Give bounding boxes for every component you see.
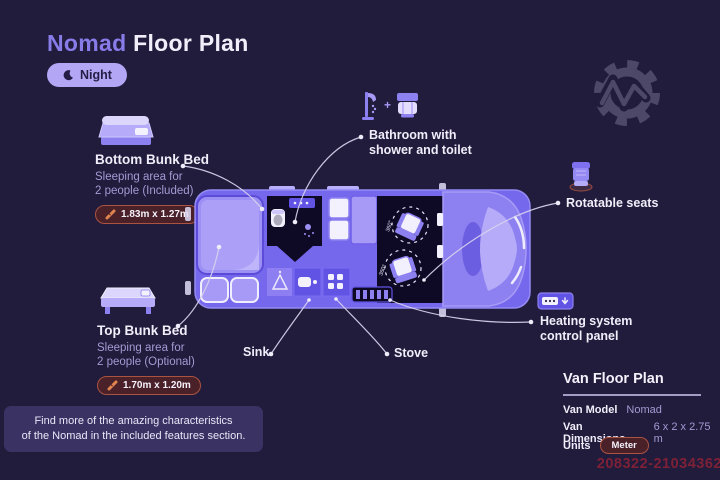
bottom-bunk-title: Bottom Bunk Bed	[95, 152, 209, 167]
top-bunk-dimensions-badge: 1.70m x 1.20m	[97, 376, 201, 395]
bathroom-label: Bathroom with shower and toilet	[369, 128, 472, 158]
van-info-panel-title: Van Floor Plan	[563, 371, 664, 387]
plus-sign: +	[384, 98, 391, 112]
bed-area	[197, 196, 263, 302]
ruler-icon	[107, 380, 118, 391]
top-bunk-title: Top Bunk Bed	[97, 323, 201, 338]
sink-label: Sink	[243, 345, 269, 360]
stove-label: Stove	[394, 346, 428, 361]
mirror-left-top	[185, 207, 191, 221]
top-bunk-desc: Sleeping area for 2 people (Optional)	[97, 341, 201, 369]
pillow	[231, 278, 258, 302]
rotatable-seat-icon	[567, 160, 595, 192]
van-floor-plan-illustration: 360° 360°	[185, 183, 535, 318]
kitchen-area	[267, 268, 350, 296]
heating-panel-icon	[537, 292, 574, 310]
info-banner: Find more of the amazing characteristics…	[4, 406, 263, 452]
cabinets-area	[329, 196, 377, 244]
cab-area	[437, 192, 526, 306]
bottom-bunk-bed-icon	[95, 110, 209, 148]
brand-logo-gear-icon	[591, 53, 663, 133]
toilet-icon	[396, 92, 419, 119]
bottom-bunk-dimensions-badge: 1.83m x 1.27m	[95, 205, 199, 224]
pillow	[201, 278, 228, 302]
night-mode-label: Night	[80, 68, 112, 82]
sink-unit	[294, 268, 321, 296]
page-title: Nomad Floor Plan	[47, 30, 249, 57]
moon-icon	[62, 69, 74, 81]
ruler-icon	[105, 209, 116, 220]
shower-icon	[362, 90, 379, 120]
watermark-id: 208322-21034362	[597, 456, 720, 472]
nomad-floor-plan-screen: Nomad Floor Plan Night Bottom Bunk Bed	[0, 0, 720, 480]
bathroom-icons: +	[362, 90, 419, 120]
info-row-units: Units Meter	[563, 437, 649, 454]
heating-label: Heating system control panel	[540, 314, 632, 344]
info-row-model: Van Model Nomad	[563, 404, 662, 416]
title-rest: Floor Plan	[126, 30, 248, 56]
night-mode-toggle[interactable]: Night	[47, 63, 127, 87]
units-badge[interactable]: Meter	[600, 437, 649, 454]
panel-underline	[563, 394, 701, 396]
title-brand: Nomad	[47, 30, 126, 56]
heating-control-unit	[352, 287, 392, 302]
stove-unit	[323, 268, 350, 296]
rotatable-seats-label: Rotatable seats	[566, 196, 658, 211]
mirror-left-bottom	[185, 281, 191, 295]
